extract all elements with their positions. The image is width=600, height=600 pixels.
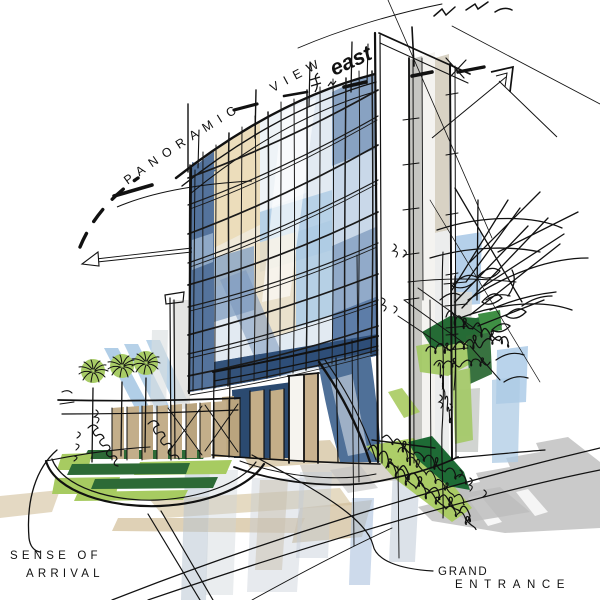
svg-text:ARRIVAL: ARRIVAL (26, 568, 104, 580)
svg-text:ENTRANCE: ENTRANCE (455, 579, 571, 591)
svg-text:GRAND: GRAND (438, 566, 489, 578)
svg-text:SENSE OF: SENSE OF (10, 550, 102, 562)
